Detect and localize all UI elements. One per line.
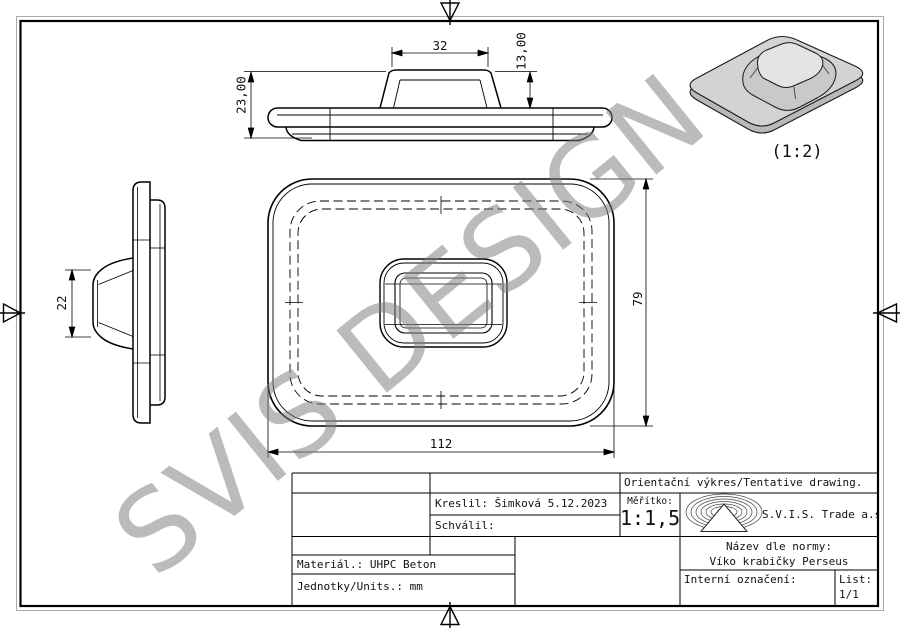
iso-view [690, 37, 863, 134]
tb-company-name: S.V.I.S. Trade a.s. [762, 493, 878, 536]
tb-tentative-note: Orientační výkres/Tentative drawing. [624, 473, 876, 493]
side-view [93, 182, 165, 423]
tb-units: Jednotky/Units.: mm [297, 574, 512, 600]
tb-internal-label: Interní označení: [684, 572, 832, 587]
plan-view [268, 179, 614, 426]
plan-handle [380, 259, 507, 347]
dim-plan-width: 112 [411, 436, 471, 451]
tb-sheet-label: List: [839, 572, 877, 587]
hidden-line-ticks [285, 196, 597, 409]
dim-handle-width: 32 [415, 38, 465, 53]
tb-material: Materiál.: UHPC Beton [297, 555, 512, 574]
dim-side-handle: 22 [54, 283, 68, 323]
tb-name-value: Víko krabičky Perseus [681, 554, 877, 569]
tb-scale-value: 1:1,5 [620, 506, 680, 530]
dim-total-height: 23,00 [234, 73, 248, 118]
dim-handle-height: 13,00 [514, 29, 528, 74]
drawing-sheet: 32 13,00 23,00 22 79 112 (1:2) Orientačn… [0, 0, 900, 628]
front-view [268, 70, 612, 141]
iso-scale-label: (1:2) [757, 142, 837, 162]
tb-sheet-value: 1/1 [839, 587, 877, 602]
tb-drawn-by: Kreslil: Šimková 5.12.2023 [435, 493, 618, 515]
company-logo-icon [686, 494, 762, 532]
dim-plan-height: 79 [630, 279, 644, 319]
tb-approved-by: Schválil: [435, 515, 618, 536]
tb-name-label: Název dle normy: [681, 539, 877, 554]
